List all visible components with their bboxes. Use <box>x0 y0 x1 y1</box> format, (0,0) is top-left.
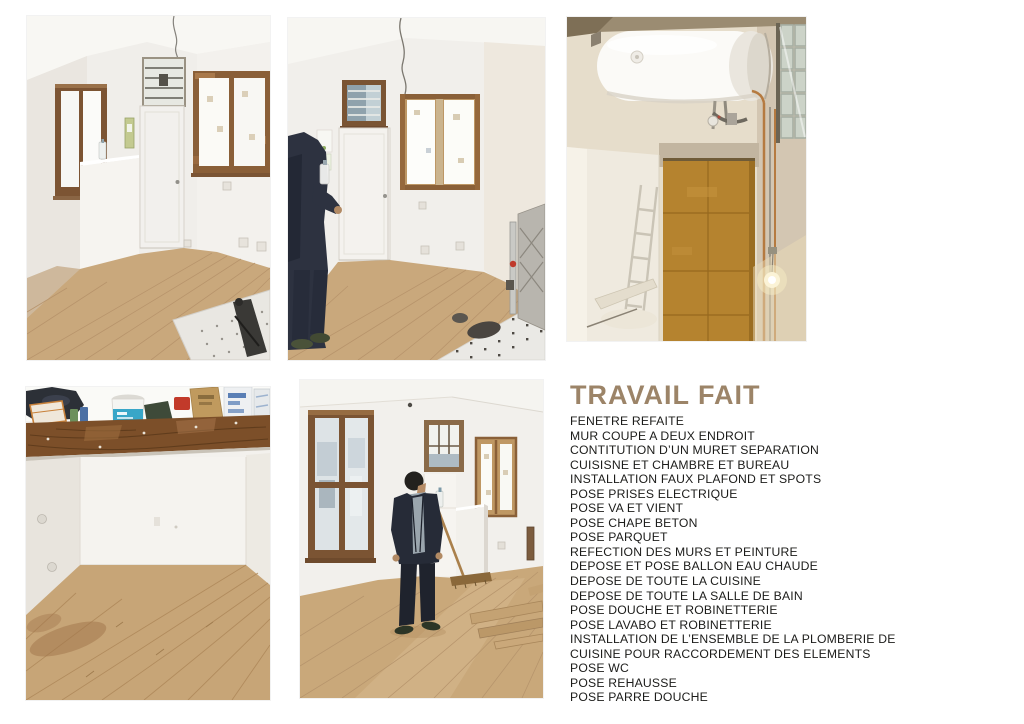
work-item: POSE PARQUET <box>570 530 1022 545</box>
photo-room-3-illustration <box>300 380 543 698</box>
work-item: DEPOSE DE TOUTE LA CUISINE <box>570 574 1022 589</box>
photo-room-1-illustration <box>27 16 270 360</box>
work-item: CUISINE POUR RACCORDEMENT DES ELEMENTS <box>570 647 1022 662</box>
work-item: REFECTION DES MURS ET PEINTURE <box>570 545 1022 560</box>
work-item: POSE LAVABO ET ROBINETTERIE <box>570 618 1022 633</box>
work-item: FENETRE REFAITE <box>570 414 1022 429</box>
photo-water-heater-installation <box>567 17 806 341</box>
document-page: TRAVAIL FAIT FENETRE REFAITE MUR COUPE A… <box>0 0 1024 724</box>
photo-room-person-broom-parquet <box>300 380 543 698</box>
work-item: POSE CHAPE BETON <box>570 516 1022 531</box>
photo-heater-illustration <box>567 17 806 341</box>
work-item: POSE DOUCHE ET ROBINETTERIE <box>570 603 1022 618</box>
work-item: POSE PARRE DOUCHE <box>570 690 1022 705</box>
work-item: DEPOSE DE TOUTE LA SALLE DE BAIN <box>570 589 1022 604</box>
work-item: MUR COUPE A DEUX ENDROIT <box>570 429 1022 444</box>
work-item: CONTITUTION D’UN MURET SEPARATION <box>570 443 1022 458</box>
photo-mezzanine-beam-storage <box>26 387 270 700</box>
photo-renovated-room-person-standing <box>288 18 545 360</box>
work-item: DEPOSE ET POSE BALLON EAU CHAUDE <box>570 559 1022 574</box>
work-item: INSTALLATION FAUX PLAFOND ET SPOTS <box>570 472 1022 487</box>
work-done-title: TRAVAIL FAIT <box>570 380 1022 410</box>
work-item: INSTALLATION DE L’ENSEMBLE DE LA PLOMBER… <box>570 632 1022 647</box>
work-done-section: TRAVAIL FAIT FENETRE REFAITE MUR COUPE A… <box>570 380 1022 705</box>
photo-room-2-illustration <box>288 18 545 360</box>
work-item: POSE VA ET VIENT <box>570 501 1022 516</box>
work-item: CUISISNE ET CHAMBRE ET BUREAU <box>570 458 1022 473</box>
work-item: POSE WC <box>570 661 1022 676</box>
photo-mezzanine-illustration <box>26 387 270 700</box>
photo-renovated-room-door-windows <box>27 16 270 360</box>
work-done-list: FENETRE REFAITE MUR COUPE A DEUX ENDROIT… <box>570 414 1022 705</box>
work-item: POSE PRISES ELECTRIQUE <box>570 487 1022 502</box>
work-item: POSE REHAUSSE <box>570 676 1022 691</box>
